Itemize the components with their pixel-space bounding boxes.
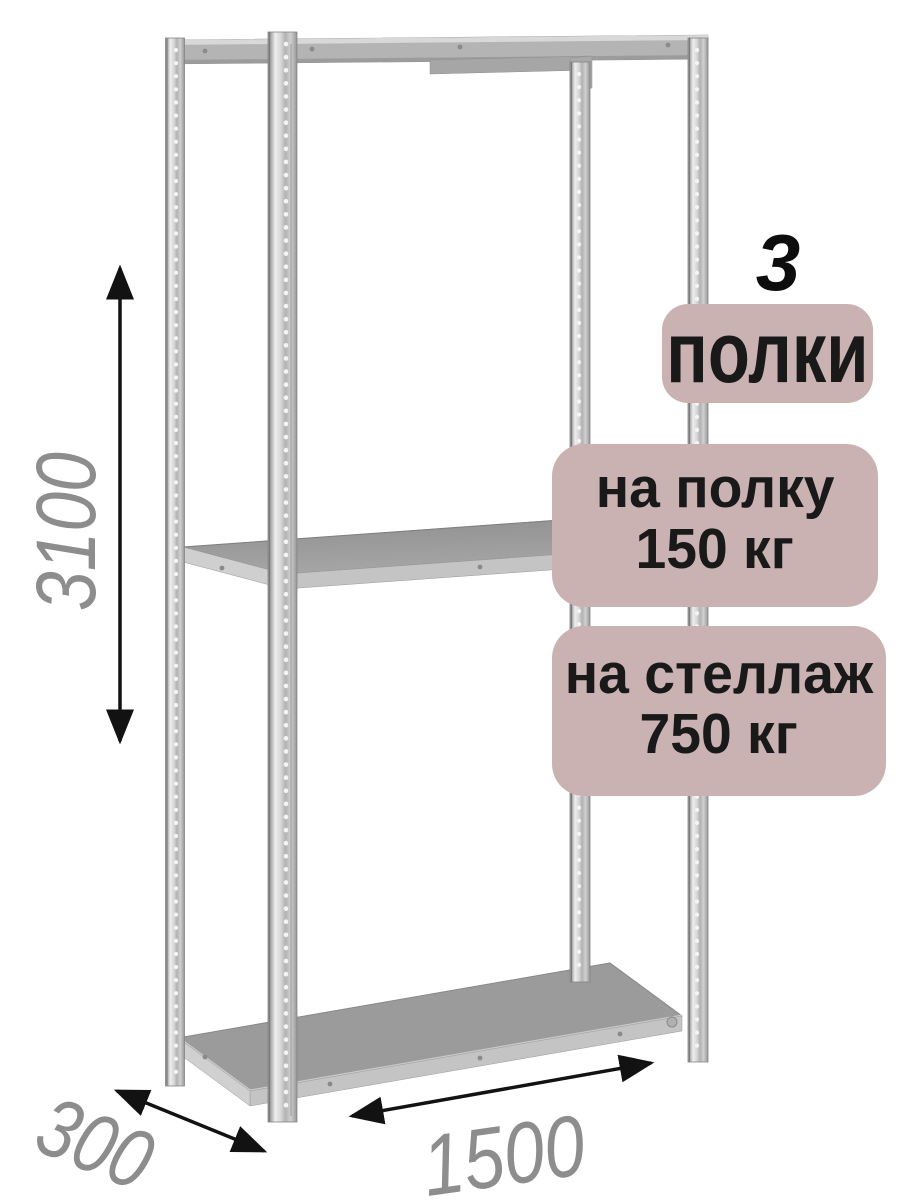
- shelf-load-line2: 150 кг: [636, 519, 794, 579]
- rack-post-back-left: [166, 38, 185, 1086]
- shelf-load-badge: на полку 150 кг: [552, 444, 878, 607]
- rack-top-shelf: [166, 35, 708, 74]
- shelf-count-label: полки: [666, 304, 868, 403]
- shelf-count-badge: полки: [662, 304, 873, 403]
- rack-post-front-left: [268, 32, 297, 1122]
- shelf-count-number: 3: [718, 218, 838, 308]
- height-value: 3100: [18, 453, 115, 612]
- rack-load-badge: на стеллаж 750 кг: [552, 626, 886, 796]
- rack-bottom-shelf: [178, 963, 682, 1106]
- dimension-height-label: 3100: [21, 382, 111, 682]
- rack-load-line1: на стеллаж: [565, 644, 873, 704]
- product-dimension-diagram: 3100 300 1500 3 полки на полку 150 кг на…: [0, 0, 900, 1200]
- shelf-load-line1: на полку: [596, 458, 835, 518]
- rack-load-line2: 750 кг: [640, 704, 798, 764]
